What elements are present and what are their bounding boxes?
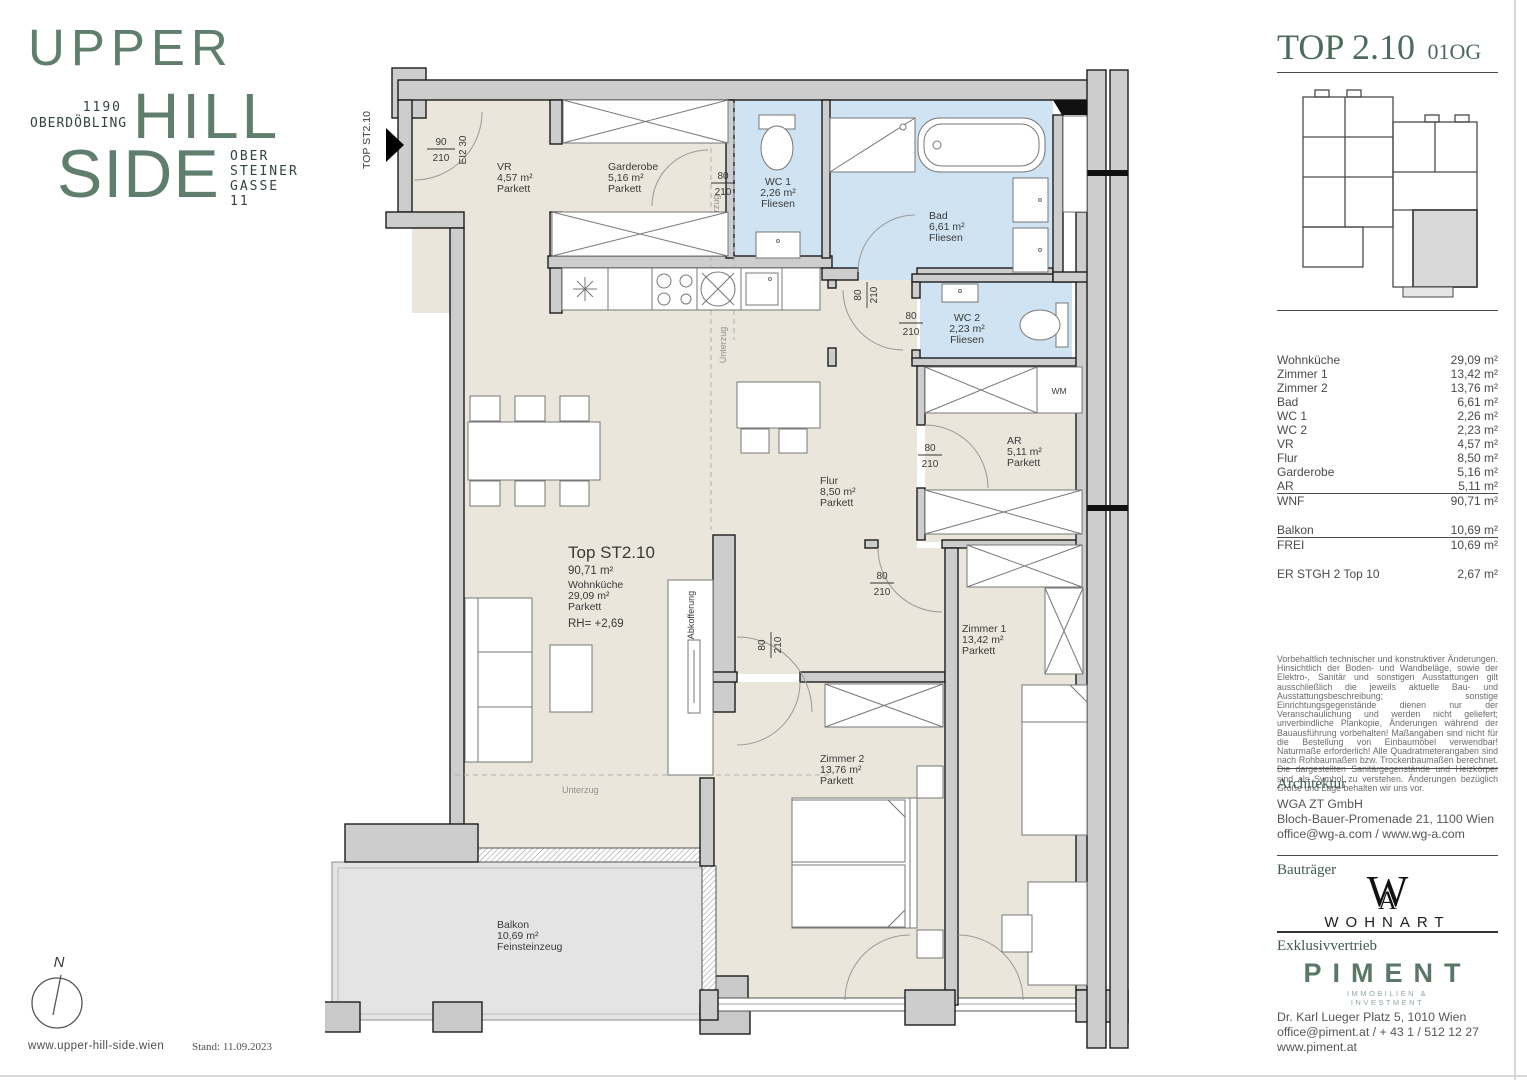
svg-text:210: 210 xyxy=(433,153,450,164)
brand-district: OBERDÖBLING xyxy=(30,116,122,132)
svg-text:80: 80 xyxy=(717,171,729,182)
wohnart-logo: W A WOHNART xyxy=(1277,866,1498,931)
table-row-er: ER STGH 2 Top 102,67 m² xyxy=(1277,567,1498,581)
wohnart-mark-a: A xyxy=(1378,886,1397,916)
svg-text:90: 90 xyxy=(435,137,447,148)
sales-address: Dr. Karl Lueger Platz 5, 1010 Wien xyxy=(1277,1010,1498,1025)
washbasin-icon xyxy=(1013,178,1048,222)
architect-contact: office@wg-a.com / www.wg-a.com xyxy=(1277,827,1498,842)
svg-text:Parkett: Parkett xyxy=(820,497,853,509)
beam-label-3: Unterzug xyxy=(562,785,599,795)
piment-logo: PIMENT IMMOBILIEN & INVESTMENT xyxy=(1277,958,1498,1007)
brand-street-2: STEINER xyxy=(230,164,299,180)
svg-text:210: 210 xyxy=(715,187,732,198)
highlighted-unit xyxy=(1413,210,1477,287)
svg-text:210: 210 xyxy=(922,459,939,470)
wardrobe xyxy=(1045,588,1083,674)
svg-text:Parkett: Parkett xyxy=(608,183,641,195)
table-row-wnf: WNF90,71 m² xyxy=(1277,493,1498,508)
toilet-icon xyxy=(759,115,795,170)
brand-street-4: 11 xyxy=(230,194,250,210)
info-panel: TOP 2.10 01OG Wohnk xyxy=(1277,0,1498,1080)
unit-label-rotated: TOP ST2.10 xyxy=(361,111,373,169)
piment-tagline: IMMOBILIEN & INVESTMENT xyxy=(1277,989,1498,1007)
shower-icon xyxy=(830,118,915,172)
bathtub-icon xyxy=(918,118,1045,172)
kitchen-counter xyxy=(562,268,820,310)
wardrobe xyxy=(925,367,1037,413)
brand-word-side: SIDE xyxy=(57,140,220,208)
divider xyxy=(1277,310,1498,311)
svg-text:Fliesen: Fliesen xyxy=(761,198,795,210)
table-row: Flur8,50 m² xyxy=(1277,451,1498,465)
divider xyxy=(1277,72,1498,73)
desk xyxy=(1028,882,1087,985)
svg-text:Top ST2.10: Top ST2.10 xyxy=(568,543,655,562)
svg-text:Feinsteinzeug: Feinsteinzeug xyxy=(497,941,563,953)
svg-text:Parkett: Parkett xyxy=(497,183,530,195)
desk-chair xyxy=(1002,915,1032,952)
beam-label-2: Unterzug xyxy=(718,327,728,364)
wohnart-name: WOHNART xyxy=(1277,914,1498,931)
divider xyxy=(1277,931,1498,933)
sales-website: www.piment.at xyxy=(1277,1040,1498,1055)
dining-table xyxy=(468,396,600,506)
svg-text:210: 210 xyxy=(869,286,880,303)
svg-text:80: 80 xyxy=(924,443,936,454)
svg-text:Fliesen: Fliesen xyxy=(929,232,963,244)
table-row: Garderobe5,16 m² xyxy=(1277,465,1498,479)
brand-zip: 1190 xyxy=(30,100,122,116)
legal-disclaimer: Vorbehaltlich technischer und konstrukti… xyxy=(1277,655,1498,793)
svg-text:80: 80 xyxy=(876,571,888,582)
wardrobe xyxy=(925,490,1082,534)
svg-text:Parkett: Parkett xyxy=(962,645,995,657)
svg-text:210: 210 xyxy=(874,587,891,598)
footer-website: www.upper-hill-side.wien xyxy=(28,1040,164,1052)
sink-icon xyxy=(746,273,778,305)
boxing-label: Abkofferung xyxy=(686,591,696,639)
brand-street-3: GASSE xyxy=(230,179,279,195)
divider xyxy=(1277,855,1498,856)
svg-text:90,71 m²: 90,71 m² xyxy=(568,565,614,577)
area-table: Wohnküche29,09 m² Zimmer 113,42 m² Zimme… xyxy=(1277,353,1498,581)
architect-company: WGA ZT GmbH xyxy=(1277,797,1498,812)
table-row: Zimmer 213,76 m² xyxy=(1277,381,1498,395)
page-border-right xyxy=(1514,0,1516,1080)
corner-sink-icon xyxy=(701,272,735,306)
building-key-plan xyxy=(1285,82,1495,304)
brand-word-upper: UPPER xyxy=(28,22,234,73)
architect-address: Bloch-Bauer-Promenade 21, 1100 Wien xyxy=(1277,812,1498,827)
svg-text:210: 210 xyxy=(903,327,920,338)
table-row: AR5,11 m² xyxy=(1277,479,1498,493)
piment-wordmark: PIMENT xyxy=(1277,958,1498,989)
brand-street-1: OBER xyxy=(230,149,269,165)
sofa xyxy=(465,598,532,762)
svg-text:80: 80 xyxy=(853,289,864,301)
unit-title: TOP 2.10 xyxy=(1277,27,1415,67)
table-row-frei: FREI10,69 m² xyxy=(1277,538,1498,552)
coffee-table xyxy=(550,645,592,712)
wardrobe xyxy=(552,212,728,256)
svg-text:RH= +2,69: RH= +2,69 xyxy=(568,618,624,630)
washing-machine-label: WM xyxy=(1051,386,1066,396)
svg-text:Fliesen: Fliesen xyxy=(950,334,984,346)
table-row: Zimmer 113,42 m² xyxy=(1277,367,1498,381)
sales-contact: office@piment.at / + 43 1 / 512 12 27 xyxy=(1277,1025,1498,1040)
svg-text:80: 80 xyxy=(757,639,768,651)
divider xyxy=(1277,768,1498,769)
floor-label: 01OG xyxy=(1427,39,1481,64)
table-row: Wohnküche29,09 m² xyxy=(1277,353,1498,367)
svg-text:210: 210 xyxy=(773,636,784,653)
svg-text:Parkett: Parkett xyxy=(820,775,853,787)
table-row: Bad6,61 m² xyxy=(1277,395,1498,409)
plan-date: Stand: 11.09.2023 xyxy=(192,1041,272,1053)
sales-heading: Exklusivvertrieb xyxy=(1277,938,1377,955)
table-row-balkon: Balkon10,69 m² xyxy=(1277,523,1498,538)
table-row: WC 22,23 m² xyxy=(1277,423,1498,437)
north-label: N xyxy=(54,954,65,971)
wardrobe xyxy=(563,100,728,143)
wardrobe xyxy=(825,684,943,727)
table-row: WC 12,26 m² xyxy=(1277,409,1498,423)
svg-text:Parkett: Parkett xyxy=(1007,457,1040,469)
washbasin-icon xyxy=(756,232,800,258)
architecture-heading: Architektur xyxy=(1277,776,1346,793)
svg-text:Parkett: Parkett xyxy=(568,601,601,613)
single-bed xyxy=(1022,685,1087,835)
north-compass: N xyxy=(15,945,110,1045)
wardrobe xyxy=(967,545,1082,587)
washbasin-icon xyxy=(942,284,978,302)
fire-rating: EI2 30 xyxy=(458,135,469,164)
svg-text:80: 80 xyxy=(905,311,917,322)
apartment-floor-plan: TOP ST2.10 Unterzug Unterzug Unterzug xyxy=(325,50,1140,1060)
washbasin-icon xyxy=(1013,228,1048,272)
floor-plan-sheet: UPPER HILL SIDE 1190 OBERDÖBLING OBER ST… xyxy=(0,0,1527,1080)
table-row: VR4,57 m² xyxy=(1277,437,1498,451)
